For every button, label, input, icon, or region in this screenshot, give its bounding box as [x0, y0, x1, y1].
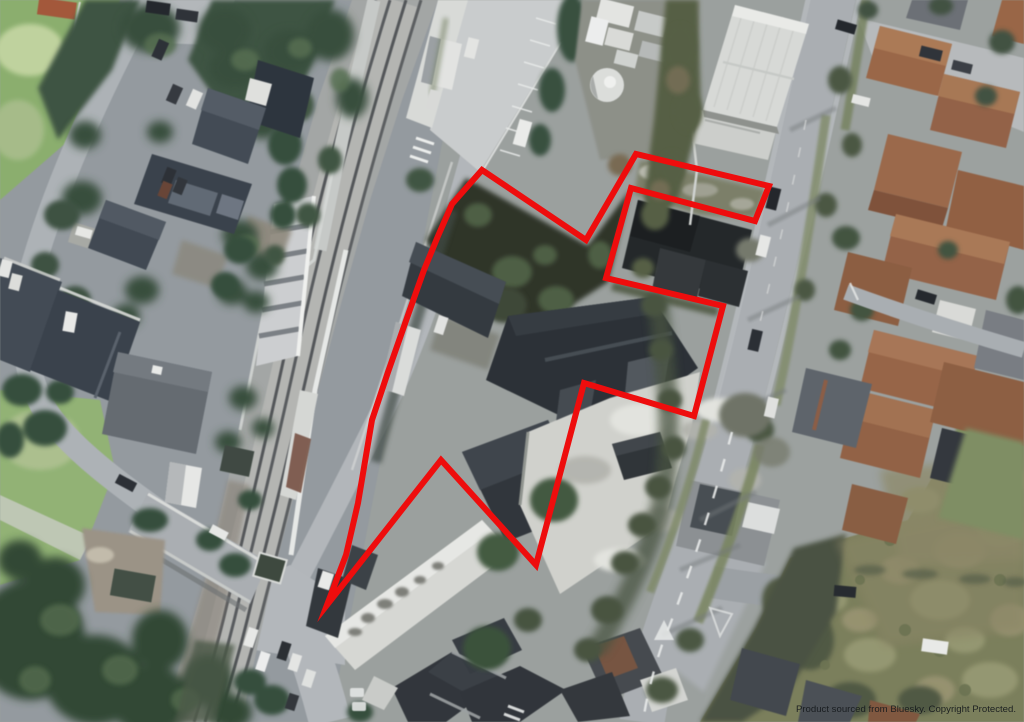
svg-text:Product sourced from Bluesky.: Product sourced from Bluesky. Copyright … [796, 704, 1016, 715]
